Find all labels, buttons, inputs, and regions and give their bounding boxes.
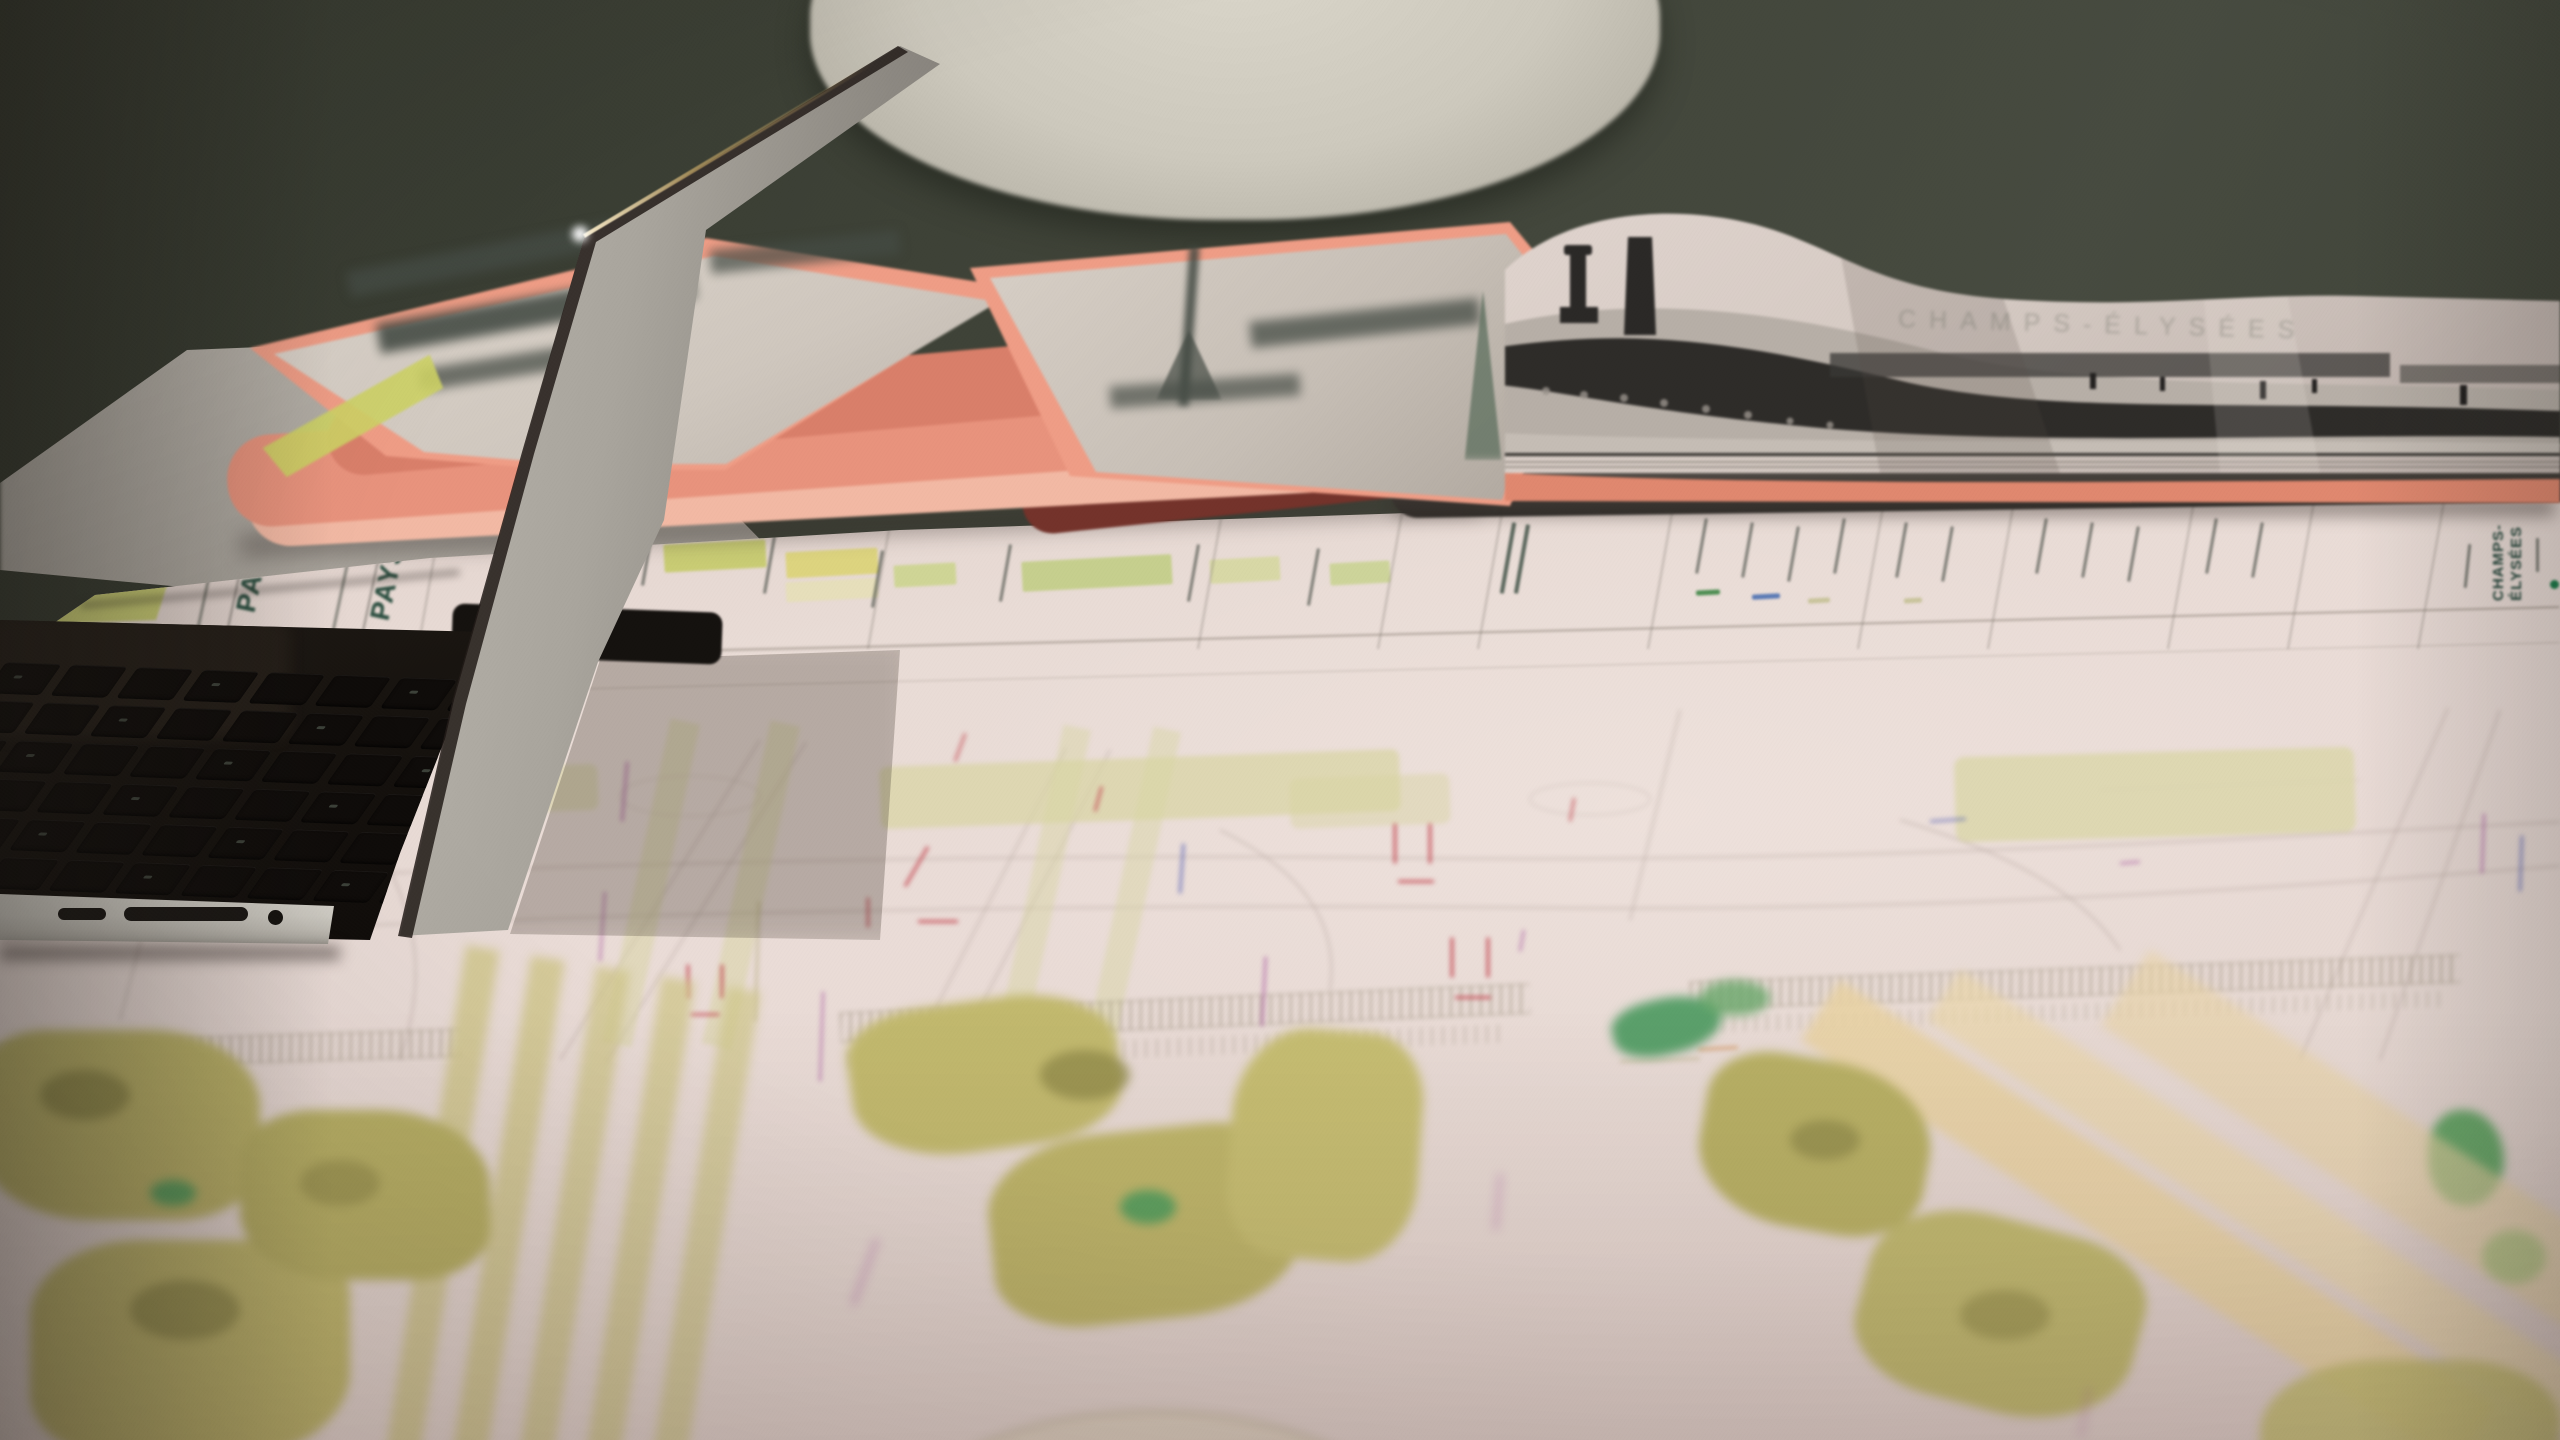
- plan-pen-stroke: [2481, 813, 2486, 873]
- keyboard-key: [380, 677, 458, 710]
- key-legend-glow: [328, 805, 338, 808]
- key-legend-glow: [421, 769, 431, 772]
- keyboard-key: [0, 741, 74, 774]
- plan-pen-stroke: [1094, 786, 1104, 812]
- legend-label-text: [1833, 518, 1846, 574]
- park-shade: [1960, 1290, 2050, 1340]
- keyboard-key: [194, 748, 272, 781]
- tree-green-accent: [1120, 1190, 1176, 1224]
- key-legend-glow: [316, 726, 326, 729]
- sketchbook: [150, 150, 1600, 570]
- key-legend-glow: [25, 754, 35, 757]
- plan-pen-stroke: [867, 898, 870, 928]
- keyboard-key: [312, 870, 390, 903]
- park-shade: [130, 1280, 240, 1340]
- desk-scene-photo: PAYSAGE PAYSAGE CHAMPS- ÉLYSÉES: [0, 0, 2560, 1440]
- park-shade: [1790, 1120, 1860, 1160]
- title-block-small-text-2: [2536, 538, 2539, 572]
- keyboard-key: [182, 670, 260, 703]
- keyboard-key: [326, 753, 404, 786]
- key-legend-glow: [118, 718, 128, 721]
- park-block: [1222, 1024, 1428, 1267]
- keyboard-key: [246, 867, 324, 900]
- keyboard-key: [155, 708, 233, 741]
- plan-pen-stroke: [2120, 860, 2140, 865]
- keyboard-key: [50, 665, 128, 698]
- plan-pen-stroke: [1179, 844, 1185, 894]
- keyboard-key: [180, 865, 258, 898]
- plan-pen-stroke: [1569, 798, 1576, 822]
- tree-green-accent: [150, 1180, 196, 1206]
- legend-label-text: [2205, 518, 2218, 574]
- keyboard-key: [128, 746, 206, 779]
- plan-pen-stroke: [954, 733, 967, 762]
- legend-label-text: [1695, 518, 1708, 574]
- keyboard-key: [260, 751, 338, 784]
- keyboard-key: [114, 862, 192, 895]
- park-shade: [40, 1070, 130, 1120]
- keyboard-key: [35, 781, 113, 814]
- plan-far-content: [0, 940, 2560, 1440]
- park-shade: [1040, 1050, 1130, 1100]
- keyboard-key: [167, 786, 245, 819]
- key-legend-glow: [38, 832, 48, 835]
- park-block: [0, 1030, 260, 1220]
- key-legend-glow: [130, 797, 140, 800]
- key-legend-glow: [236, 840, 246, 843]
- keyboard-key: [353, 715, 431, 748]
- title-accent-dot: [2550, 580, 2559, 589]
- keyboard-key: [299, 791, 377, 824]
- keyboard-key: [314, 675, 392, 708]
- plan-pen-stroke: [1398, 880, 1434, 883]
- legend-label-text: [2081, 522, 2094, 578]
- park-shade: [300, 1160, 380, 1206]
- pen-mark: [1494, 1174, 1503, 1230]
- title-block-small-text: [2464, 544, 2472, 588]
- key-legend-glow: [143, 875, 153, 878]
- audio-jack: [268, 910, 283, 925]
- oval-parterre: [900, 1410, 1406, 1440]
- legend-label-text: [1941, 526, 1954, 582]
- plan-pen-stroke: [1930, 817, 1966, 823]
- keyboard-key: [89, 705, 167, 738]
- key-legend-glow: [211, 683, 221, 686]
- keyboard-key: [116, 667, 194, 700]
- keyboard-key: [23, 703, 101, 736]
- legend-label-text: [2251, 522, 2264, 578]
- plan-pen-stroke: [1394, 824, 1397, 864]
- legend-label-text: [2035, 518, 2048, 574]
- key-legend-glow: [13, 675, 23, 678]
- keyboard-key: [75, 822, 153, 855]
- keyboard-key: [272, 829, 350, 862]
- plan-pen-stroke: [904, 846, 930, 887]
- keyboard-key: [48, 860, 126, 893]
- keyboard-key: [141, 824, 219, 857]
- magazine: CHAMPS-ÉLYSÉES: [1500, 195, 2560, 515]
- plan-pen-stroke: [2519, 835, 2524, 891]
- pen-mark: [851, 1238, 879, 1305]
- legend-label-text: [1741, 522, 1754, 578]
- keyboard-key: [233, 789, 311, 822]
- keyboard-key: [221, 710, 299, 743]
- keyboard-key: [9, 819, 87, 852]
- keyboard-key: [207, 827, 285, 860]
- masterplan-sheet: PAYSAGE PAYSAGE CHAMPS- ÉLYSÉES: [0, 470, 2560, 1440]
- tree-green-accent: [1700, 980, 1770, 1016]
- vent-slot: [124, 907, 248, 921]
- keyboard-key: [248, 672, 326, 705]
- keyboard-key: [287, 713, 365, 746]
- usb-c-port: [58, 908, 106, 920]
- magazine-page-svg: [1500, 195, 2560, 515]
- legend-label-text: [1787, 526, 1800, 582]
- key-legend-glow: [223, 761, 233, 764]
- keyboard-key: [62, 743, 140, 776]
- legend-label-text: [2127, 526, 2140, 582]
- legend-label-text: [1895, 522, 1908, 578]
- plan-pen-stroke: [621, 762, 629, 822]
- key-legend-glow: [409, 691, 419, 694]
- keyboard-key: [101, 784, 179, 817]
- key-legend-glow: [341, 883, 351, 886]
- park-block: [2260, 1360, 2560, 1440]
- plan-pen-stroke: [1429, 824, 1432, 864]
- plan-pen-stroke: [918, 920, 958, 923]
